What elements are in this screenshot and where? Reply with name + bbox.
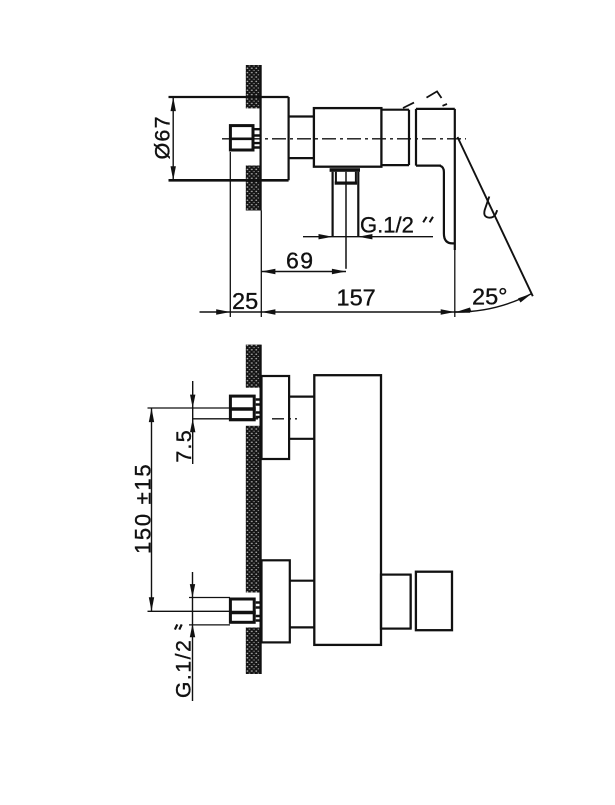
svg-text:150 ±15: 150 ±15 [130,463,155,554]
svg-text:G.1/2: G.1/2 [360,213,414,238]
svg-text:Ø67: Ø67 [151,115,175,159]
svg-text:25°: 25° [472,284,508,310]
svg-text:25: 25 [232,288,258,314]
svg-text:7.5: 7.5 [172,429,196,463]
svg-text:69: 69 [286,247,315,273]
svg-text:157: 157 [337,285,376,311]
svg-text:G.1/2: G.1/2 [173,639,196,698]
